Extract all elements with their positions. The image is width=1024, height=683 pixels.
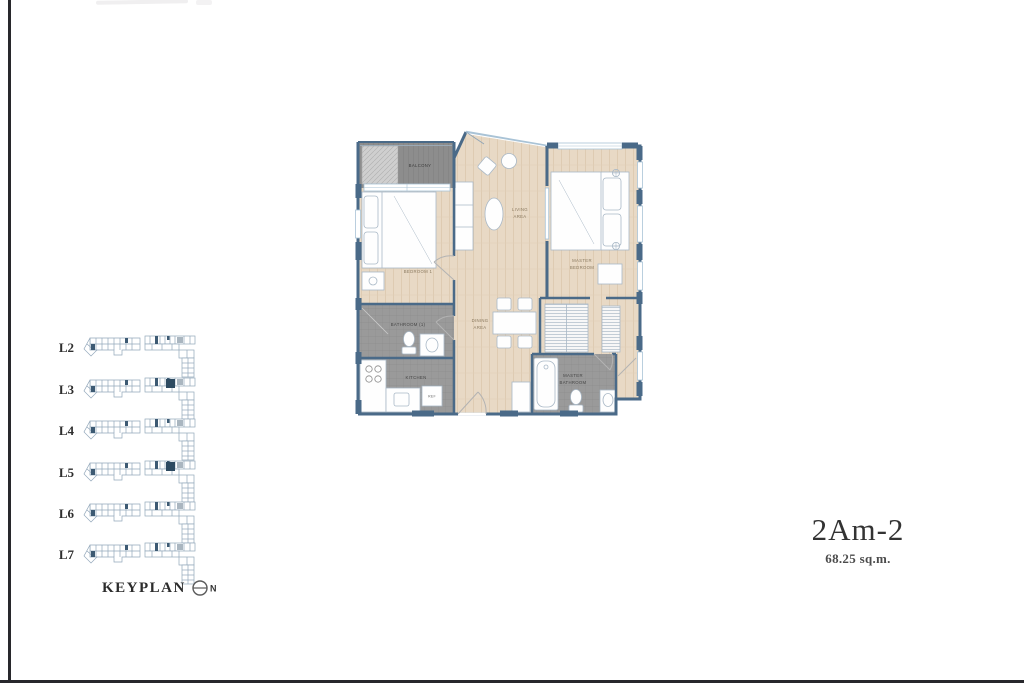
unit-highlight (166, 462, 175, 471)
nightstand (362, 272, 384, 290)
coffee-table (485, 198, 503, 230)
nightstand (598, 264, 622, 284)
level-label: L2 (44, 334, 74, 356)
svg-text:AREA: AREA (514, 214, 527, 219)
master-bathroom-label: MASTER (563, 373, 583, 378)
kitchen-label: KITCHEN (406, 375, 427, 380)
cropped-top-artifact (196, 0, 212, 5)
cropped-top-artifact (96, 0, 188, 5)
level-label: L5 (44, 459, 74, 481)
pillow (364, 232, 378, 264)
closet-nook-floor (616, 354, 640, 399)
svg-text:BEDROOM: BEDROOM (570, 265, 594, 270)
dining-chair (518, 298, 532, 310)
unit-area: 68.25 sq.m. (756, 551, 960, 567)
master-bedroom-label: MASTER (572, 258, 592, 263)
floorplan-page: { "page": { "left_border_color": "#28282… (0, 0, 1024, 683)
pillow (364, 196, 378, 228)
unit-info: 2Am-2 68.25 sq.m. (756, 512, 960, 567)
level-label: L6 (44, 500, 74, 522)
unit-highlight (166, 379, 175, 388)
toilet (404, 332, 415, 347)
living-label: LIVING (512, 207, 528, 212)
toilet (571, 390, 582, 405)
keyplan-building (82, 417, 202, 463)
ac-unit (362, 146, 398, 184)
keyplan-building (82, 459, 202, 505)
pillow (603, 178, 621, 210)
keyplan-row-l4: L4 (44, 417, 202, 463)
unit-name: 2Am-2 (756, 512, 960, 548)
kitchen-counter (360, 360, 386, 412)
bedroom1-label: BEDROOM 1 (404, 269, 433, 274)
north-arrow-icon: N (191, 578, 219, 598)
shoe-cabinet (512, 382, 530, 412)
level-label: L3 (44, 376, 74, 398)
north-label: N (210, 584, 217, 594)
svg-text:AREA: AREA (474, 325, 487, 330)
svg-text:BATHROOM: BATHROOM (560, 380, 587, 385)
keyplan-title-block: KEYPLAN N (102, 578, 219, 598)
pillow (603, 214, 621, 246)
dining-chair (518, 336, 532, 348)
keyplan-building (82, 376, 202, 422)
keyplan-title: KEYPLAN (102, 580, 186, 597)
toilet-tank (402, 347, 416, 354)
vanity (420, 334, 444, 356)
dining-label: DINING (472, 318, 489, 323)
level-label: L7 (44, 541, 74, 563)
dining-chair (497, 336, 511, 348)
tv-console (455, 182, 473, 250)
floorplan: BALCONY BEDROOM 1 LIVING AREA MASTER BED… (354, 126, 644, 422)
dining-chair (497, 298, 511, 310)
keyplan-row-l6: L6 (44, 500, 202, 546)
dining-table (493, 312, 536, 334)
keyplan-row-l3: L3 (44, 376, 202, 422)
entry-table (502, 154, 517, 169)
ref-label: REF (428, 395, 436, 399)
level-label: L4 (44, 417, 74, 439)
kitchen-sink-counter (386, 388, 420, 412)
wardrobe (602, 306, 620, 352)
keyplan-row-l5: L5 (44, 459, 202, 505)
keyplan-building (82, 334, 202, 380)
keyplan-row-l2: L2 (44, 334, 202, 380)
keyplan-building (82, 500, 202, 546)
sliding-door (545, 188, 548, 239)
balcony-label: BALCONY (409, 163, 432, 168)
bathroom1-label: BATHROOM (1) (391, 322, 426, 327)
page-left-border (8, 0, 11, 683)
